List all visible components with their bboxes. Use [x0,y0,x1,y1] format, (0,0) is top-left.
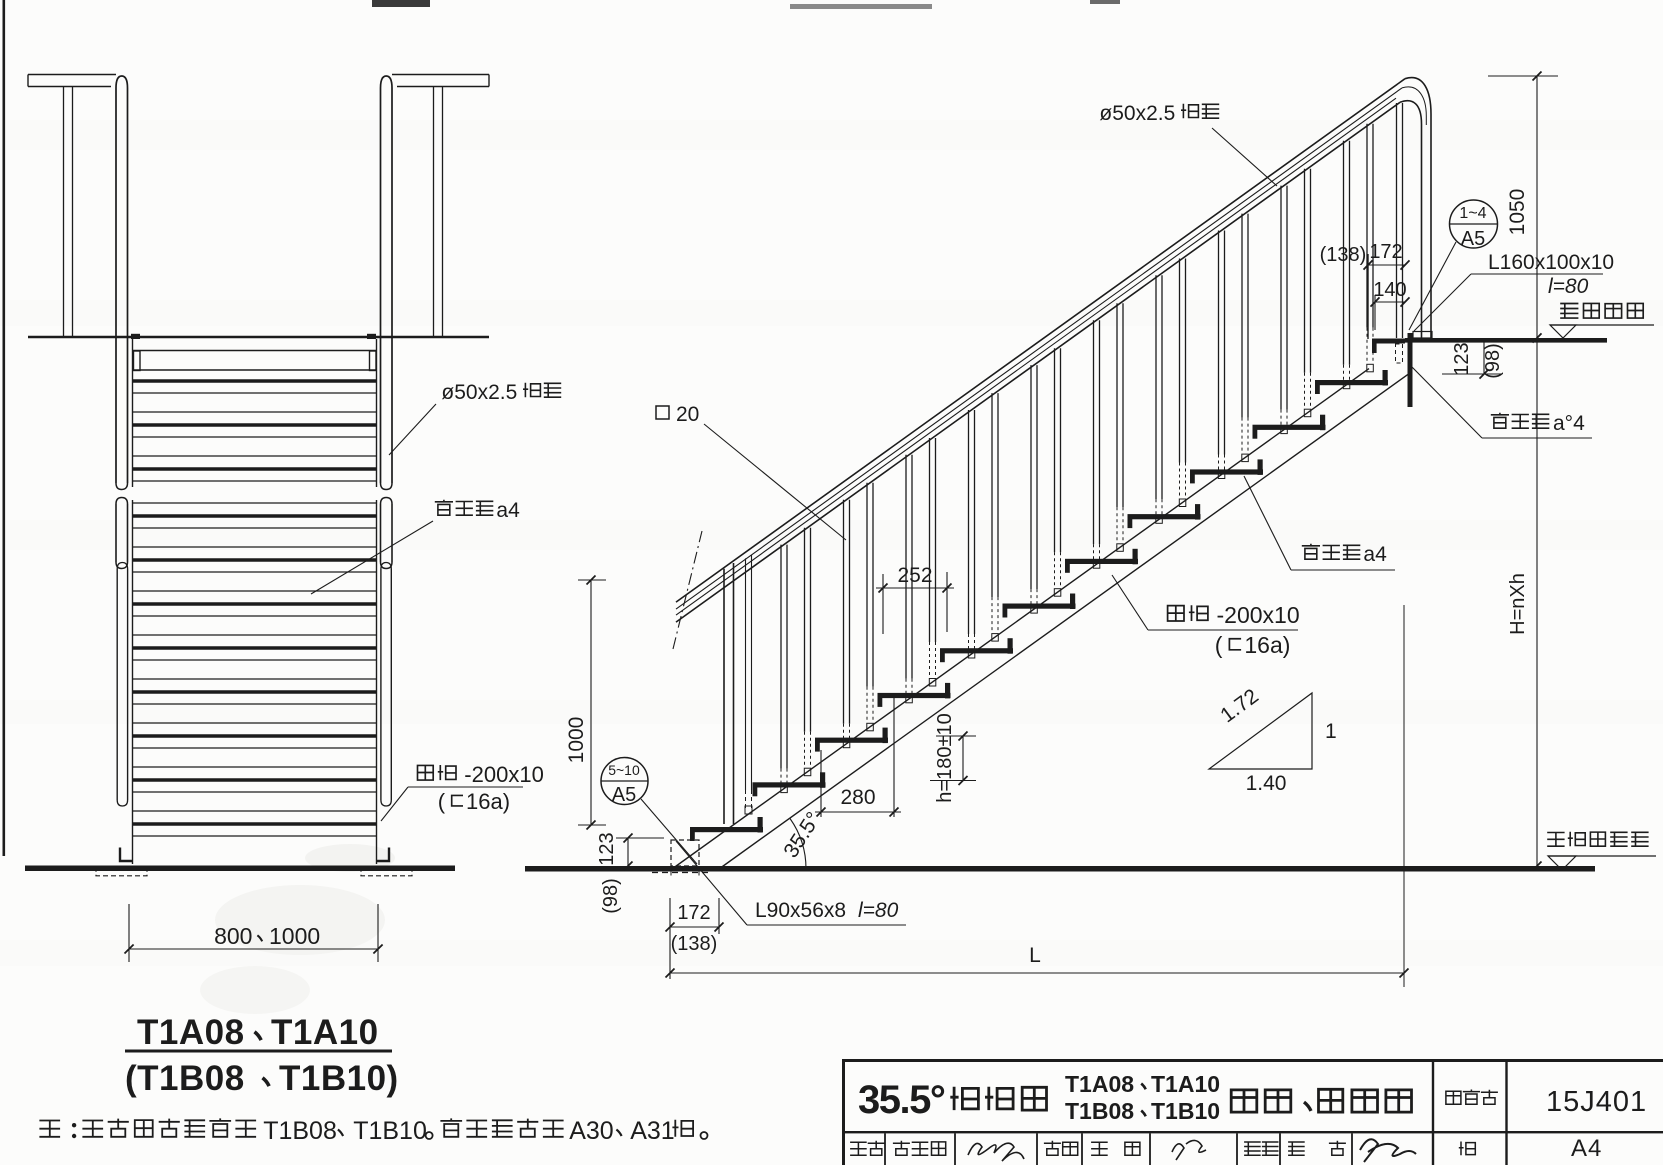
svg-text:A4: A4 [1571,1135,1602,1162]
svg-text:16a): 16a) [1244,632,1290,658]
svg-text:35.5°: 35.5° [858,1078,945,1122]
svg-text:h=180±10: h=180±10 [934,713,956,802]
svg-text:L: L [1029,944,1041,967]
svg-text:(: ( [1215,632,1223,658]
svg-text:T1A10: T1A10 [1151,1071,1220,1097]
svg-text:1050: 1050 [1506,189,1529,236]
svg-text:A30: A30 [569,1117,613,1145]
svg-text:1000: 1000 [565,717,588,764]
svg-text:A5: A5 [612,784,636,806]
svg-text:(98): (98) [600,878,622,914]
svg-text:140: 140 [1373,279,1406,301]
svg-text:1000: 1000 [269,923,320,949]
svg-text:252: 252 [897,564,932,587]
svg-text:172: 172 [1369,241,1402,263]
svg-text:20: 20 [676,403,699,426]
svg-text:T1A08: T1A08 [1065,1071,1134,1097]
svg-text:280: 280 [840,786,875,809]
svg-text:(98): (98) [1482,343,1504,379]
svg-text:T1A08: T1A08 [137,1013,245,1052]
svg-text:A5: A5 [1461,228,1485,250]
svg-text:a4: a4 [1363,543,1387,566]
svg-text:5~10: 5~10 [608,762,640,778]
svg-text:(: ( [438,789,446,814]
svg-text:1: 1 [1325,720,1337,743]
svg-text:H=nXh: H=nXh [1507,573,1529,635]
svg-text:l=80: l=80 [858,899,899,922]
svg-text:800: 800 [214,923,252,949]
svg-text:123: 123 [1451,342,1473,375]
svg-text:l=80: l=80 [1548,275,1589,298]
svg-text:172: 172 [677,902,710,924]
svg-text:T1B08: T1B08 [1065,1098,1134,1124]
svg-text:-200x10: -200x10 [464,762,544,787]
svg-text:T1B10: T1B10 [1151,1098,1220,1124]
svg-text:L90x56x8: L90x56x8 [755,899,846,922]
svg-text:15J401: 15J401 [1546,1086,1647,1118]
svg-text:a°4: a°4 [1553,412,1585,435]
svg-text:123: 123 [596,832,618,865]
svg-text:(T1B08: (T1B08 [125,1059,245,1098]
svg-text:T1A10: T1A10 [271,1013,379,1052]
svg-text:ø50x2.5: ø50x2.5 [441,381,517,404]
svg-text:-200x10: -200x10 [1217,602,1300,628]
svg-text:ø50x2.5: ø50x2.5 [1099,102,1175,125]
svg-text:L160x100x10: L160x100x10 [1488,251,1614,274]
svg-text:T1B10: T1B10 [353,1117,427,1145]
svg-text:a4: a4 [496,499,520,522]
svg-text:(138): (138) [1320,244,1367,266]
svg-text:1.40: 1.40 [1246,772,1287,795]
svg-text:16a): 16a) [466,789,510,814]
svg-text:T1B10): T1B10) [279,1059,399,1098]
svg-text:(138): (138) [671,933,718,955]
svg-text:A31: A31 [630,1117,674,1145]
svg-text:1~4: 1~4 [1459,205,1486,222]
svg-text:T1B08: T1B08 [263,1117,337,1145]
